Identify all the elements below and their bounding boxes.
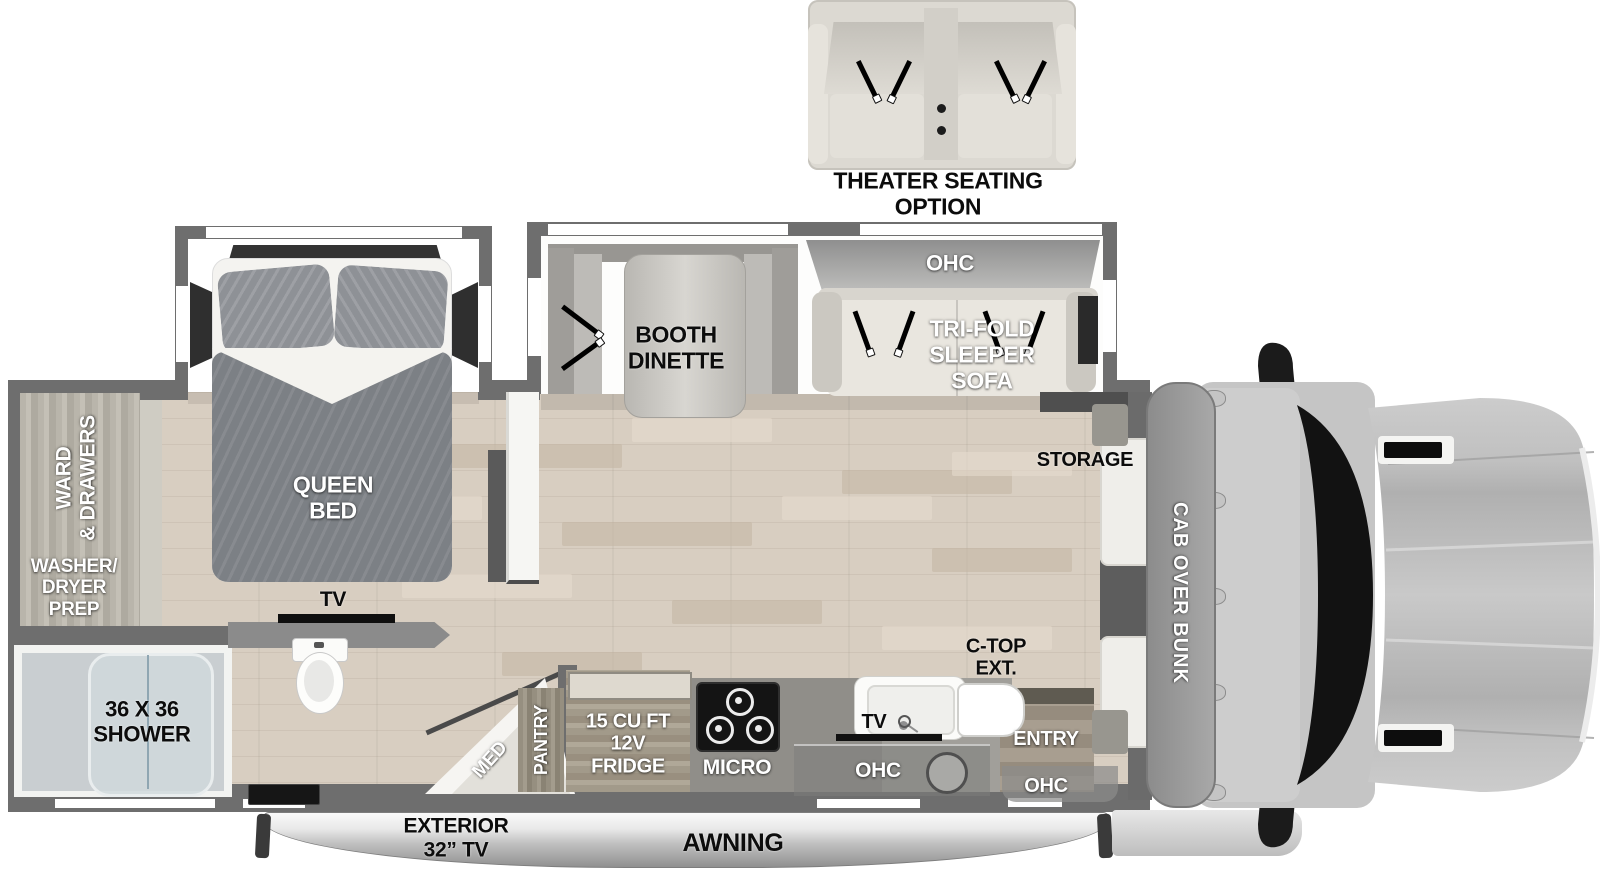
awning-end-cap [255, 814, 271, 859]
awning-label: AWNING [683, 829, 784, 857]
toilet-flush [314, 642, 324, 648]
partition-wall-dark [488, 450, 506, 582]
sofa-wall-tv-panel [1078, 296, 1098, 364]
storage-cabinet [1092, 404, 1128, 446]
sofa-ohc-label: OHC [926, 252, 974, 277]
shower-label: 36 X 36 SHOWER [93, 697, 190, 746]
pillow [333, 264, 448, 353]
dinette-bench-left [548, 248, 574, 394]
burner-icon [706, 716, 734, 744]
theater-armrest-right [1056, 24, 1076, 164]
window-strip [176, 286, 188, 362]
theater-seat-right [958, 94, 1052, 158]
bedroom-tv-bar [278, 614, 395, 623]
cab-over-bunk-label: CAB OVER BUNK [1169, 502, 1191, 684]
burner-icon [726, 688, 754, 716]
hood-vent-icon [1378, 724, 1454, 752]
kitchen-tv-bar [836, 734, 942, 741]
sofa-armrest-left [812, 292, 842, 392]
ward-drawers-label: WARD & DRAWERS [52, 415, 99, 541]
theater-armrest-left [808, 24, 828, 164]
awning-end-cap [1097, 814, 1113, 859]
tri-fold-sofa-label: TRI-FOLD SLEEPER SOFA [929, 316, 1034, 393]
booth-dinette-label: BOOTH DINETTE [628, 322, 724, 374]
burner-icon [746, 716, 774, 744]
theater-seating-label: THEATER SEATING OPTION [833, 168, 1042, 220]
window-strip [548, 224, 788, 235]
entry-label: ENTRY [1013, 728, 1079, 750]
dinette-bench-right [772, 248, 798, 394]
queen-bed-label: QUEEN BED [293, 472, 373, 524]
exterior-tv-label: EXTERIOR 32” TV [404, 814, 509, 861]
dinette-seat-right [744, 254, 772, 394]
cooktop [696, 682, 780, 752]
theater-console [924, 8, 958, 160]
pillow [217, 263, 336, 354]
pantry-label: PANTRY [531, 705, 551, 775]
window-strip [817, 799, 920, 808]
entry-ohc-label: OHC [1024, 775, 1068, 797]
window-strip [1103, 280, 1116, 352]
cupholder-icon [937, 104, 946, 113]
hood-vent-icon [1378, 436, 1454, 464]
toilet-seat [304, 660, 334, 702]
theater-seating-graphic [808, 0, 1076, 170]
cupholder-icon [937, 126, 946, 135]
window-strip [55, 799, 215, 808]
ohc-circle [926, 752, 968, 794]
washer-dryer-prep-label: WASHER/ DRYER PREP [31, 556, 118, 620]
ctop-ext-label: C-TOP EXT. [966, 636, 1026, 681]
window-strip [206, 227, 462, 238]
storage-cabinet [1092, 710, 1128, 754]
theater-seat-left [830, 94, 924, 158]
fridge-label: 15 CU FT 12V FRIDGE [586, 710, 670, 777]
window-strip [860, 224, 1102, 235]
kitchen-ohc-label: OHC [855, 759, 901, 783]
storage-label: STORAGE [1037, 449, 1133, 471]
micro-label: MICRO [703, 756, 772, 780]
exterior-tv-panel [248, 784, 320, 805]
bedroom-tv-label: TV [320, 588, 346, 612]
partition-wall [506, 392, 539, 584]
rv-floorplan: THEATER SEATING OPTION [0, 0, 1600, 880]
fridge-door-top [568, 672, 692, 700]
window-strip [528, 278, 541, 356]
bath-wall [8, 626, 232, 646]
window-strip [479, 286, 491, 362]
toilet [290, 638, 348, 714]
ward-cabinet-side [140, 400, 162, 628]
tv-mount-icon [898, 715, 911, 728]
queen-bed [212, 258, 452, 582]
kitchen-tv-label: TV [862, 711, 887, 733]
